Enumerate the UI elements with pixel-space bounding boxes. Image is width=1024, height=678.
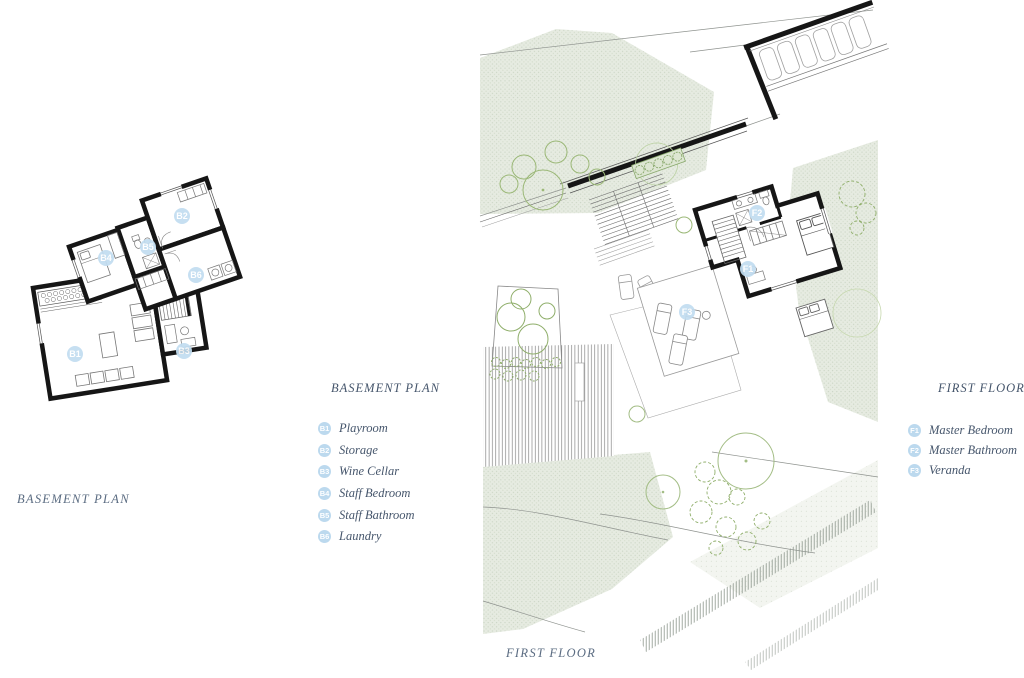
room-label-f3: F3: [679, 304, 695, 320]
room-label-b5: B5: [140, 239, 156, 255]
legend-item-b5: B5 Staff Bathroom: [318, 504, 440, 526]
first-floor-legend-title: FIRST FLOOR: [938, 381, 1024, 396]
legend-item-f3: F3 Veranda: [908, 460, 1024, 480]
legend-item-label: Playroom: [339, 421, 388, 436]
legend-item-b3: B3 Wine Cellar: [318, 461, 440, 483]
plan-sheet: B1 B2 B3 B4 B5 B6 F1 F2 F3 BASEMENT PLAN…: [0, 0, 1024, 678]
room-code-badge: F3: [908, 464, 921, 477]
basement-legend-title: BASEMENT PLAN: [331, 381, 440, 396]
room-code-badge: B6: [318, 530, 331, 543]
legend-item-label: Laundry: [339, 529, 381, 544]
legend-item-label: Wine Cellar: [339, 464, 399, 479]
legend-item-b4: B4 Staff Bedroom: [318, 483, 440, 505]
room-code-badge: B3: [318, 465, 331, 478]
first-floor-legend: FIRST FLOOR F1 Master Bedroom F2 Master …: [908, 381, 1024, 480]
room-label-b1: B1: [67, 346, 83, 362]
room-code-badge: B4: [318, 487, 331, 500]
basement-legend: BASEMENT PLAN B1 Playroom B2 Storage B3 …: [318, 381, 440, 548]
first-floor-legend-items: F1 Master Bedroom F2 Master Bathroom F3 …: [908, 420, 1024, 480]
basement-plan-caption: BASEMENT PLAN: [17, 492, 130, 507]
garden-steps-lower: [594, 230, 654, 266]
first-floor-caption: FIRST FLOOR: [506, 646, 596, 661]
room-code-badge: F2: [908, 444, 921, 457]
deck: [483, 344, 614, 467]
lap-pool: [575, 363, 584, 401]
room-code-badge: F1: [908, 424, 921, 437]
room-label-f2: F2: [749, 205, 765, 221]
legend-item-label: Storage: [339, 443, 378, 458]
basement-legend-items: B1 Playroom B2 Storage B3 Wine Cellar B4…: [318, 418, 440, 548]
legend-item-label: Staff Bedroom: [339, 486, 410, 501]
parking-area: [744, 2, 898, 121]
room-code-badge: B2: [318, 444, 331, 457]
legend-item-label: Staff Bathroom: [339, 508, 415, 523]
legend-item-b2: B2 Storage: [318, 440, 440, 462]
room-label-f1: F1: [740, 261, 756, 277]
legend-item-b1: B1 Playroom: [318, 418, 440, 440]
architectural-drawing: [0, 0, 1024, 678]
room-label-b2: B2: [174, 208, 190, 224]
room-code-badge: B1: [318, 422, 331, 435]
legend-item-b6: B6 Laundry: [318, 526, 440, 548]
legend-item-f1: F1 Master Bedroom: [908, 420, 1024, 440]
legend-item-label: Master Bedroom: [929, 423, 1013, 438]
room-code-badge: B5: [318, 509, 331, 522]
room-label-b3: B3: [176, 343, 192, 359]
basement-plan-drawing: [30, 175, 242, 399]
legend-item-label: Master Bathroom: [929, 443, 1017, 458]
room-label-b6: B6: [188, 267, 204, 283]
first-floor-site-drawing: [480, 2, 898, 670]
legend-item-label: Veranda: [929, 463, 971, 478]
room-label-b4: B4: [98, 250, 114, 266]
legend-item-f2: F2 Master Bathroom: [908, 440, 1024, 460]
